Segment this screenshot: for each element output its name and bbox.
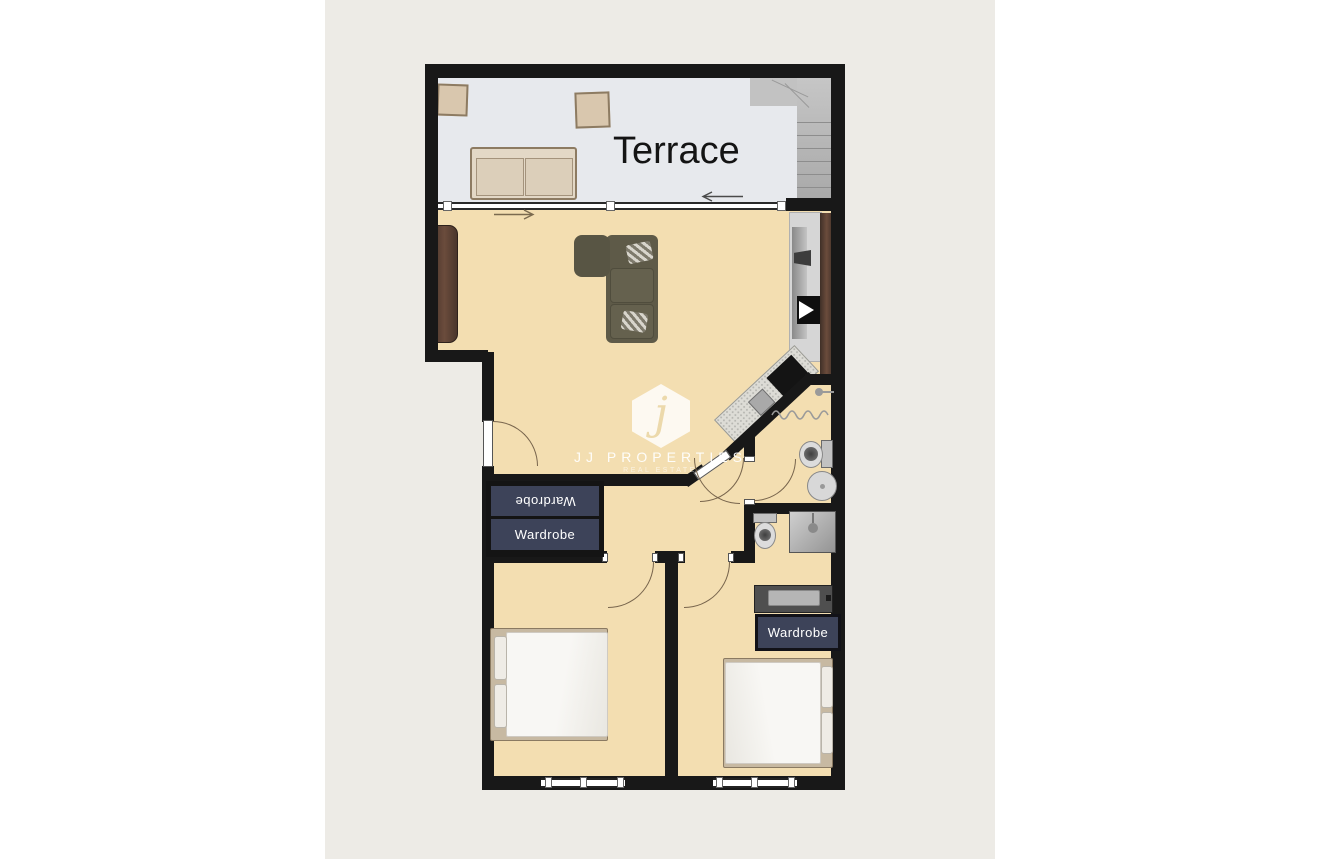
wall [425, 64, 438, 357]
round-basin-drain [820, 484, 825, 489]
watermark-letter: j [654, 388, 668, 439]
sofa-pillow [621, 310, 649, 333]
toilet2-bowl-inner [759, 529, 771, 541]
wall [786, 198, 845, 211]
wall [665, 551, 678, 790]
window-cap [545, 777, 552, 788]
bed2-pillow [821, 666, 833, 708]
bedroom1-door-jamb [652, 553, 658, 562]
dresser-knob [826, 595, 831, 601]
tv-direction-icon [799, 301, 814, 319]
wall [831, 64, 845, 790]
bedroom2-door-jamb [728, 553, 734, 562]
sofa-chaise [574, 235, 610, 277]
window-cap [788, 777, 795, 788]
wardrobe-label-rotated: Wardrobe [515, 494, 576, 509]
sliding-door-cap [777, 201, 786, 211]
wardrobe-right: Wardrobe [755, 614, 841, 651]
shower-fitting-arm [822, 391, 834, 393]
towel-radiator-icon [770, 407, 834, 421]
wardrobe-left-top: Wardrobe [491, 486, 599, 516]
sliding-door-cap [606, 201, 615, 211]
floorplan-image: Terrace [0, 0, 1320, 859]
bed1-pillow [494, 684, 507, 728]
shower-tap [808, 523, 818, 533]
slide-direction-arrow-left-icon [700, 191, 744, 202]
wall [482, 352, 494, 422]
window-cap [580, 777, 587, 788]
wardrobe-left-bottom: Wardrobe [491, 519, 599, 550]
terrace-side-table [574, 91, 610, 128]
bed1-pillow [494, 636, 507, 680]
watermark-tagline: REAL ESTATE [600, 467, 720, 474]
staircase-steps [797, 110, 833, 203]
wall [731, 551, 752, 563]
terrace-label: Terrace [613, 130, 740, 173]
wall [805, 374, 835, 385]
terrace-side-table [436, 83, 468, 116]
wardrobe-block: Wardrobe Wardrobe [486, 481, 604, 557]
toilet-bowl-inner [804, 447, 818, 461]
shower-tap-stem [812, 513, 814, 523]
window-cap [617, 777, 624, 788]
sliding-door-cap [443, 201, 452, 211]
wall [425, 64, 845, 78]
window-cap [751, 777, 758, 788]
entrance-door-leaf [483, 420, 493, 467]
slide-direction-arrow-right-icon [494, 209, 536, 220]
terrace-sofa-cushion [525, 158, 573, 196]
dresser-mirror [768, 590, 820, 606]
wall [425, 350, 488, 362]
window-cap [716, 777, 723, 788]
sofa-seat-cushion [610, 268, 654, 303]
bed2-pillow [821, 712, 833, 754]
bed2-duvet [725, 662, 821, 764]
bedroom2-door-jamb [678, 553, 684, 562]
terrace-sofa-cushion [476, 158, 524, 196]
watermark-name: JJ PROPERTIES [568, 449, 753, 465]
bed1-duvet [506, 632, 608, 737]
